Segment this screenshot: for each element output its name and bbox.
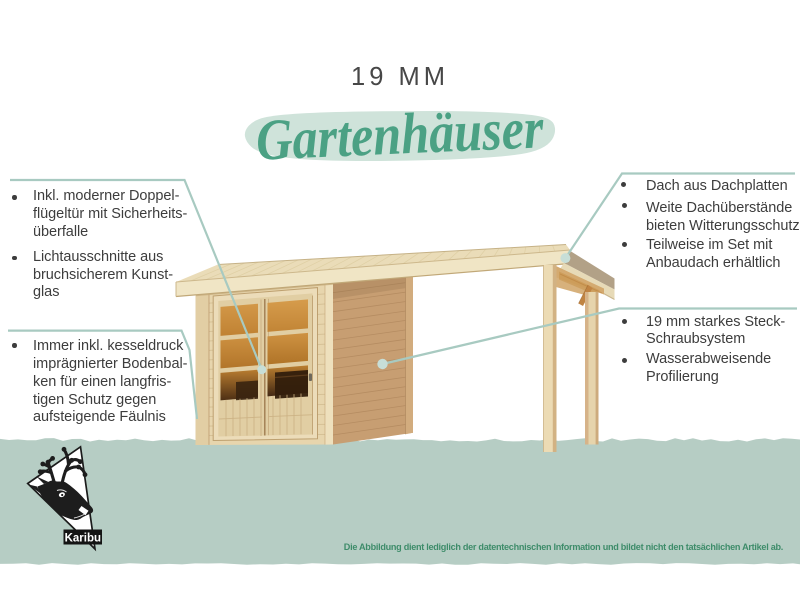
svg-text:Gartenhäuser: Gartenhäuser [255,96,546,173]
svg-text:Karibu: Karibu [65,532,101,544]
